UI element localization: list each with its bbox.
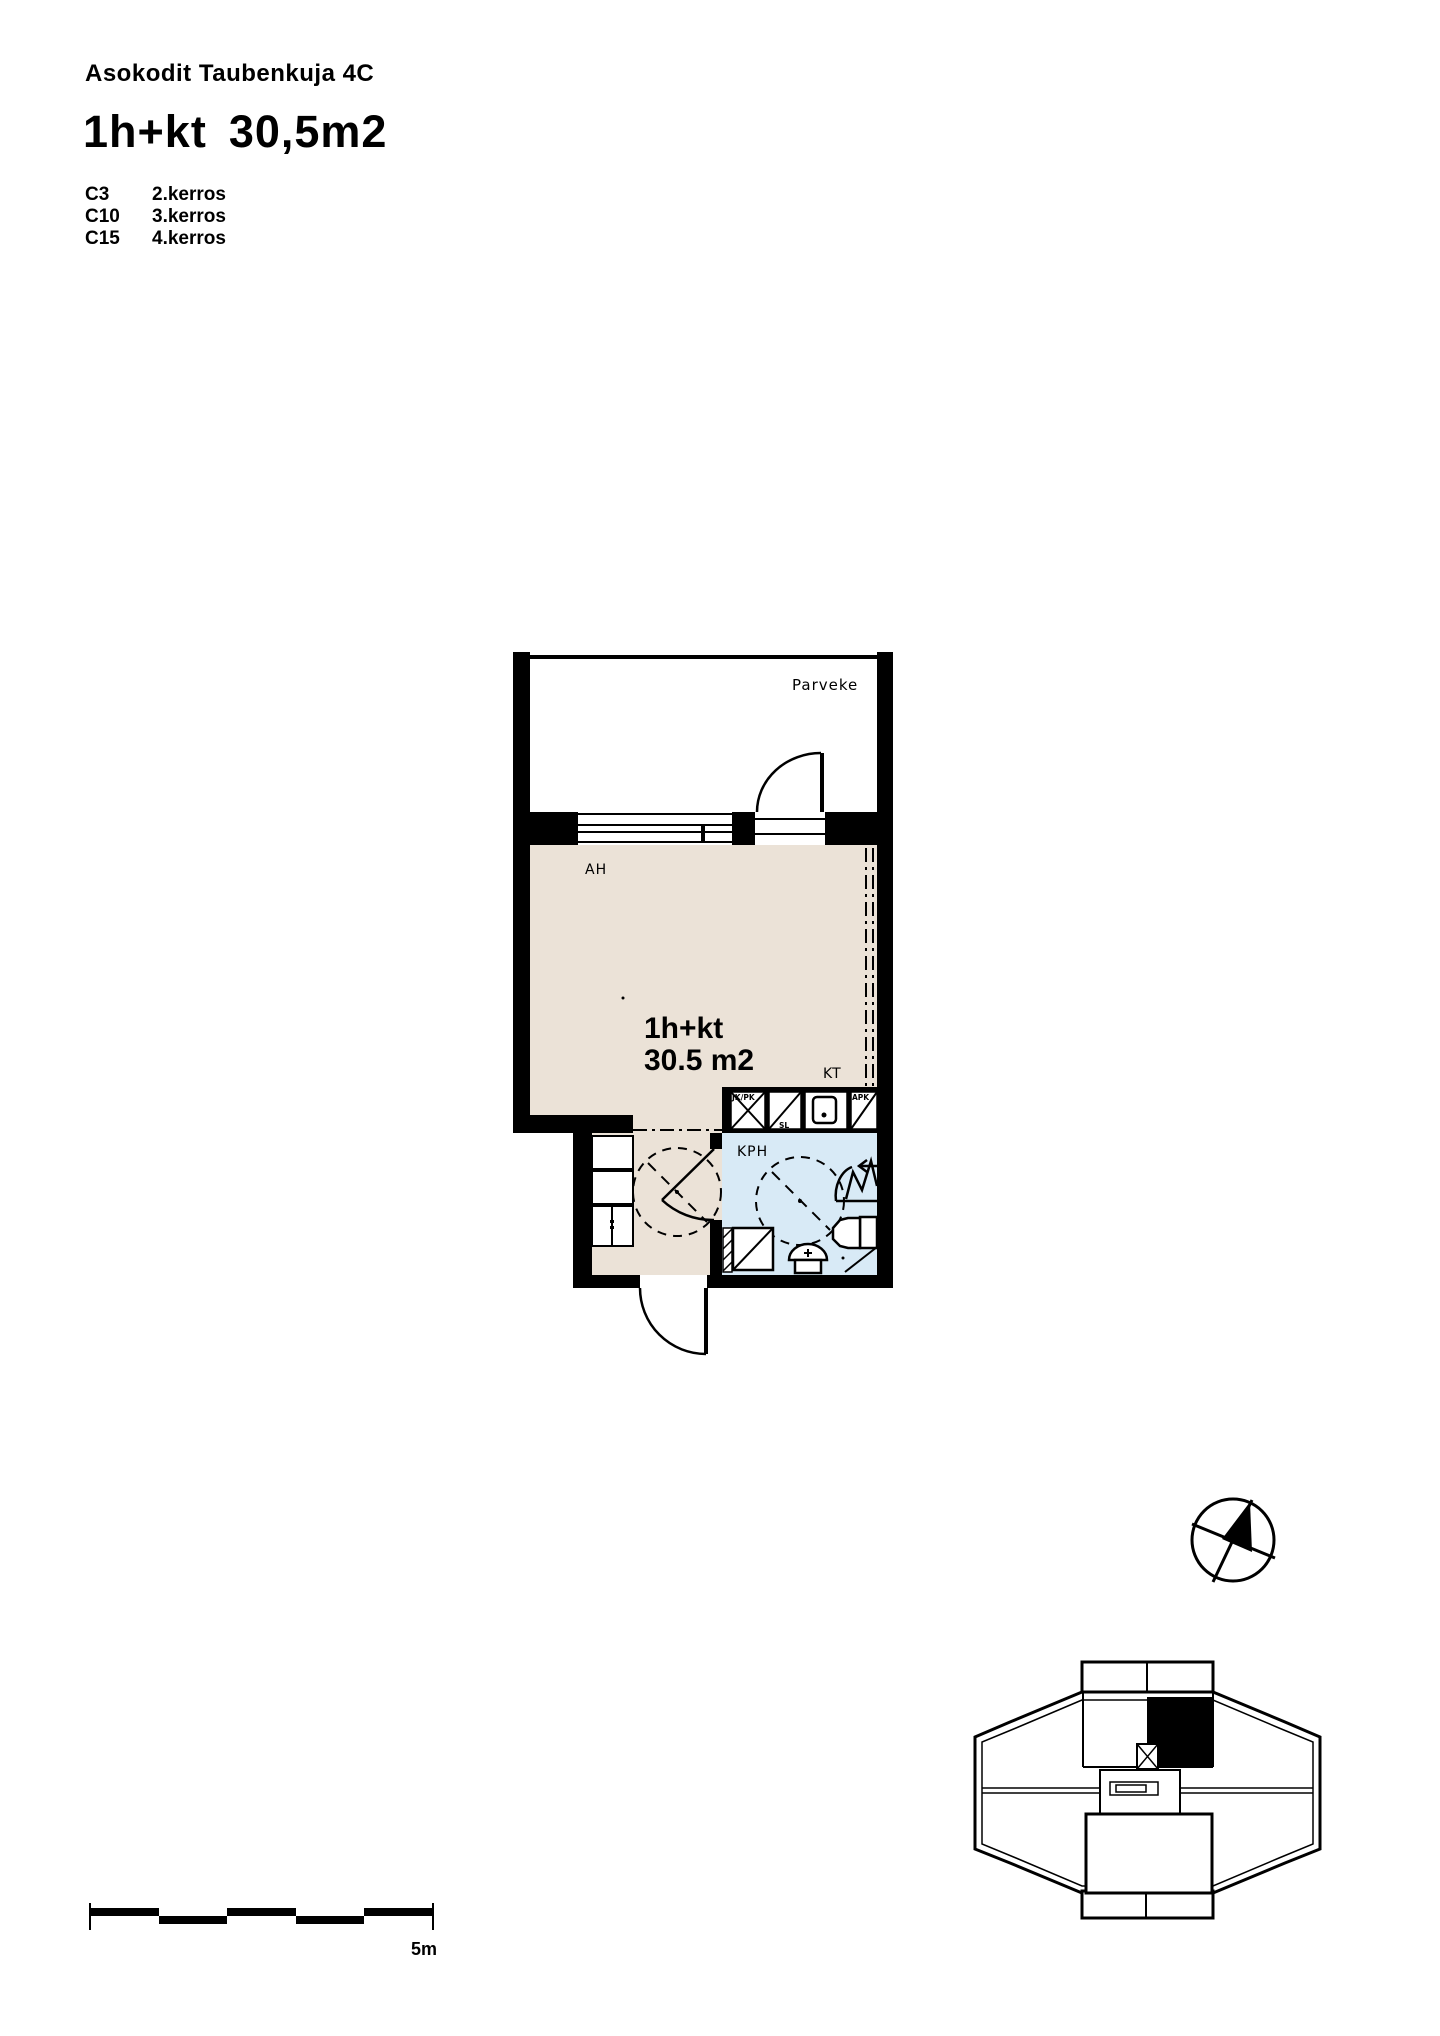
keyplan-elevator [1137, 1744, 1158, 1769]
plan-drawing: JK/PK SL APK [0, 0, 1440, 2036]
entrance-door-leaf [704, 1288, 708, 1354]
wall-room-bottom-left [513, 1115, 633, 1133]
faucet-icon [822, 1113, 827, 1118]
balcony-label: Parveke [792, 676, 858, 694]
stove-label: SL [779, 1121, 789, 1130]
window [578, 812, 732, 845]
wall-bottom [573, 1275, 893, 1288]
wall-left [513, 652, 530, 1115]
floor-plan: JK/PK SL APK [513, 652, 893, 1354]
bathroom-label: KPH [737, 1144, 768, 1160]
wall-hall-left [573, 1133, 592, 1288]
kitchen-band: JK/PK SL APK [722, 1087, 877, 1133]
entrance-door-swing [640, 1288, 706, 1354]
balcony-door-opening [755, 812, 825, 845]
exterior-wall-pier [732, 812, 755, 845]
unit-type-label: 1h+kt [644, 1012, 723, 1045]
scale-bar: 5m [89, 1903, 437, 1959]
scale-tick [432, 1903, 434, 1930]
scale-label: 5m [411, 1939, 437, 1959]
compass-rose [1192, 1499, 1275, 1582]
balcony-parapet [513, 655, 893, 659]
toilet [833, 1217, 877, 1248]
exterior-wall-right [825, 812, 893, 845]
unit-area-label: 30.5 m2 [644, 1044, 754, 1077]
living-room-label: AH [585, 862, 607, 878]
wall-kph-top [710, 1133, 722, 1149]
sink [805, 1092, 847, 1129]
building-keyplan [975, 1662, 1320, 1918]
fridge-label: JK/PK [731, 1093, 756, 1102]
closet-group [592, 1136, 633, 1246]
north-needle-icon [1222, 1502, 1252, 1552]
wall-right [877, 652, 893, 1288]
floorplan-page: Asokodit Taubenkuja 4C 1h+kt30,5m2 C3 2.… [0, 0, 1440, 2036]
closet [592, 1136, 633, 1169]
closet [592, 1171, 633, 1204]
window-mullion [701, 825, 705, 842]
washbasin [789, 1244, 827, 1273]
keyplan-lower-room [1086, 1814, 1212, 1893]
window-opening [578, 812, 732, 845]
washing-machine [733, 1228, 773, 1270]
kitchenette-label: KT [823, 1066, 842, 1082]
bathroom-doorway [710, 1149, 722, 1220]
scale-tick [89, 1903, 91, 1930]
exterior-wall-left [513, 812, 578, 845]
balcony-door-leaf [820, 753, 824, 812]
dishwasher-label: APK [852, 1093, 870, 1102]
wall-hatch [723, 1228, 732, 1272]
entrance-door [640, 1275, 708, 1354]
wall-kph-bottom [710, 1220, 722, 1275]
ceiling-point [622, 997, 625, 1000]
keyplan-bottom-wing [1082, 1891, 1213, 1918]
entrance-opening [640, 1275, 707, 1288]
